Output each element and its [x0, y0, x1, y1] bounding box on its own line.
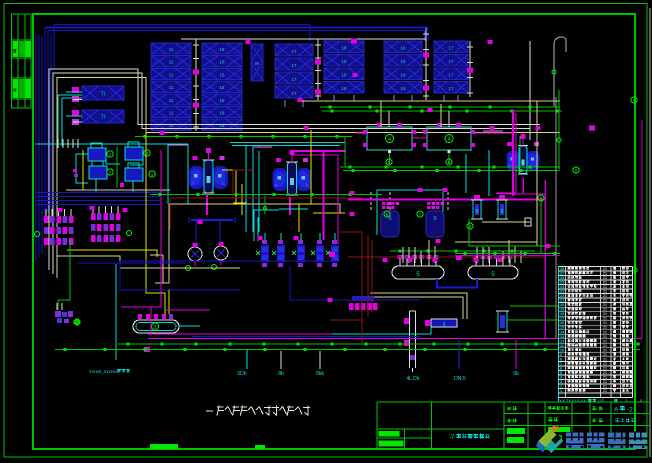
svg-text:17: 17	[292, 49, 297, 54]
svg-text:21: 21	[603, 335, 607, 339]
svg-text:DN-5: DN-5	[454, 376, 466, 382]
svg-text:21: 21	[603, 389, 607, 393]
svg-text:21: 21	[603, 308, 607, 312]
svg-text:5Db: 5Db	[237, 371, 246, 377]
svg-text:18: 18	[342, 45, 347, 50]
svg-text:5: 5	[433, 216, 436, 222]
svg-text:2: 2	[154, 325, 157, 331]
svg-text:18: 18	[220, 47, 225, 52]
svg-text:9bb: 9bb	[316, 371, 325, 377]
svg-text:16: 16	[401, 59, 406, 64]
svg-text:21: 21	[603, 285, 607, 289]
svg-text:4: 4	[388, 137, 391, 143]
svg-text:TI: TI	[101, 92, 105, 98]
svg-text:1: 1	[560, 389, 562, 393]
svg-text:11: 11	[169, 47, 174, 52]
svg-text:11: 11	[169, 60, 174, 65]
svg-text:21: 21	[603, 348, 607, 352]
svg-text:18: 18	[342, 86, 347, 91]
svg-text:21: 21	[603, 276, 607, 280]
svg-text:6: 6	[560, 366, 562, 370]
svg-text:17: 17	[449, 72, 454, 77]
svg-text:21: 21	[603, 339, 607, 343]
svg-text:3: 3	[560, 380, 562, 384]
svg-text:8: 8	[476, 209, 479, 215]
svg-text:8: 8	[560, 357, 562, 361]
svg-text:16: 16	[560, 321, 564, 325]
svg-text:21: 21	[603, 353, 607, 357]
svg-text:5: 5	[560, 371, 562, 375]
svg-text:21: 21	[603, 357, 607, 361]
svg-text:21: 21	[603, 267, 607, 271]
svg-text:4: 4	[447, 137, 450, 143]
svg-text:23: 23	[560, 290, 564, 294]
svg-text:18: 18	[220, 111, 225, 116]
svg-text:17: 17	[292, 91, 297, 96]
svg-text:-2: -2	[627, 407, 633, 414]
svg-text:8: 8	[501, 209, 504, 215]
svg-text:21: 21	[603, 299, 607, 303]
svg-text:21: 21	[603, 312, 607, 316]
svg-text:|15: |15	[598, 399, 605, 404]
svg-text:17: 17	[560, 317, 564, 321]
svg-text:20: 20	[560, 303, 564, 307]
svg-text:21: 21	[603, 294, 607, 298]
svg-text:21: 21	[603, 371, 607, 375]
svg-text:18: 18	[342, 72, 347, 77]
svg-text:2: 2	[560, 385, 562, 389]
svg-text:28: 28	[560, 267, 564, 271]
svg-text:17: 17	[449, 45, 454, 50]
svg-text:17: 17	[449, 86, 454, 91]
svg-text:3: 3	[443, 322, 446, 328]
svg-text:18: 18	[220, 85, 225, 90]
svg-text:16: 16	[401, 72, 406, 77]
svg-text:19: 19	[560, 308, 564, 312]
svg-text:11: 11	[169, 98, 174, 103]
svg-text:XX JXY15-YX: XX JXY15-YX	[559, 399, 586, 404]
svg-text:15: 15	[560, 326, 564, 330]
svg-text:21: 21	[603, 385, 607, 389]
svg-text:26: 26	[560, 276, 564, 280]
svg-text:11: 11	[560, 344, 564, 348]
svg-text:21: 21	[603, 366, 607, 370]
svg-text:21: 21	[603, 380, 607, 384]
svg-text:21: 21	[603, 375, 607, 379]
svg-text:4L Db: 4L Db	[406, 376, 419, 382]
svg-text:25: 25	[560, 281, 564, 285]
svg-text:21: 21	[603, 290, 607, 294]
svg-text:16: 16	[401, 86, 406, 91]
svg-text:21: 21	[560, 299, 564, 303]
svg-text:16: 16	[401, 45, 406, 50]
svg-text:27: 27	[560, 272, 564, 276]
svg-text:21: 21	[603, 326, 607, 330]
svg-text:13: 13	[560, 335, 564, 339]
svg-text:17: 17	[292, 63, 297, 68]
svg-text:22: 22	[560, 294, 564, 298]
svg-text:21: 21	[603, 362, 607, 366]
svg-text:9b: 9b	[513, 371, 519, 377]
svg-text:12: 12	[560, 339, 564, 343]
svg-text:21: 21	[603, 330, 607, 334]
svg-text:18: 18	[220, 72, 225, 77]
svg-text:18: 18	[560, 312, 564, 316]
svg-text:-7: -7	[449, 435, 455, 441]
svg-text:17: 17	[292, 77, 297, 82]
svg-text:21: 21	[603, 281, 607, 285]
svg-text:11: 11	[169, 72, 174, 77]
svg-text:21: 21	[603, 272, 607, 276]
svg-text:18: 18	[342, 59, 347, 64]
svg-text:21: 21	[603, 303, 607, 307]
svg-text:21: 21	[603, 317, 607, 321]
svg-text:10: 10	[560, 348, 564, 352]
svg-text:21: 21	[603, 344, 607, 348]
svg-text:21: 21	[603, 321, 607, 325]
svg-text:9: 9	[560, 353, 562, 357]
svg-text:8b: 8b	[278, 371, 284, 377]
svg-text:XxHxb_XxxHxx: XxHxb_XxxHxx	[89, 369, 119, 374]
svg-text:11: 11	[169, 85, 174, 90]
svg-text:M: M	[255, 61, 259, 66]
svg-text:TI: TI	[101, 115, 105, 121]
svg-text:18: 18	[220, 60, 225, 65]
svg-text:7: 7	[560, 362, 562, 366]
svg-text:A: A	[614, 407, 619, 414]
svg-text:17: 17	[449, 59, 454, 64]
svg-text:11: 11	[169, 111, 174, 116]
svg-text:18: 18	[220, 98, 225, 103]
